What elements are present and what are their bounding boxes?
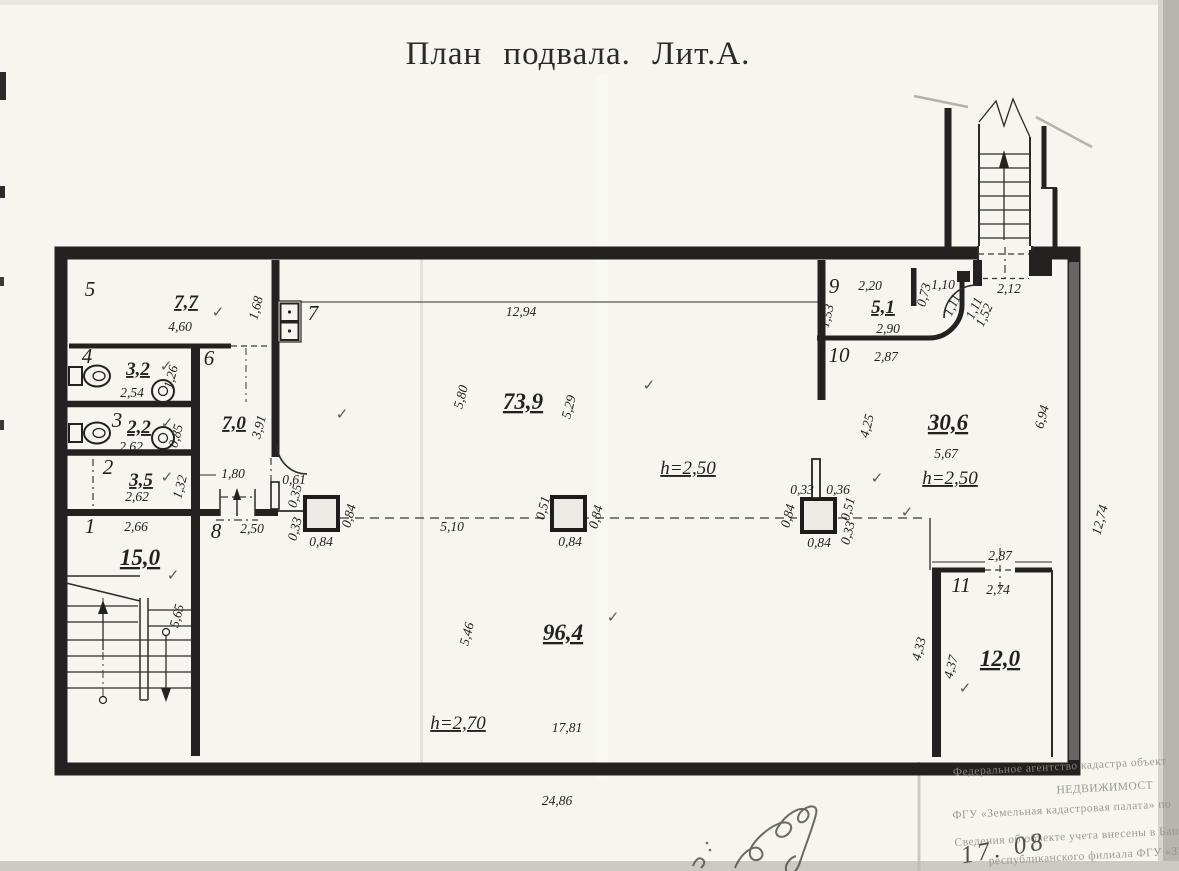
checkmark: ✓ <box>607 610 620 626</box>
stair-post <box>100 697 107 704</box>
room-number-label: 2 <box>103 455 114 479</box>
dimension-label: 2,90 <box>876 321 900 336</box>
checkmark: ✓ <box>336 407 349 423</box>
dimension-label: 1,80 <box>221 466 245 481</box>
room-area-label: 3,5 <box>128 470 153 491</box>
dimension-label: 4,60 <box>168 319 192 334</box>
scan-mark <box>0 277 4 286</box>
outer-wall-shading <box>1069 262 1079 760</box>
dimension-label: 2,66 <box>124 519 148 534</box>
column <box>305 497 338 530</box>
paper-crease <box>420 255 423 770</box>
dimension-label: 2,74 <box>986 582 1010 597</box>
dimension-label: 2,54 <box>120 385 144 400</box>
room-area-label: 2,2 <box>126 417 151 438</box>
checkmark: ✓ <box>167 568 180 584</box>
dimension-label: 24,86 <box>542 793 573 808</box>
room-number-label: 5 <box>85 277 96 301</box>
dimension-label: 2,20 <box>858 278 882 293</box>
room-area-label: 73,9 <box>503 389 544 414</box>
basement-plan-drawing: План подвала. Лит.А. <box>0 0 1179 871</box>
dimension-label: 5,67 <box>934 446 959 461</box>
dimension-label: 0,84 <box>558 534 582 549</box>
room-area-label: 7,0 <box>222 413 246 434</box>
dimension-label: 0,84 <box>309 534 333 549</box>
dimension-label: 2,87 <box>988 548 1013 563</box>
room-number-label: 4 <box>82 344 93 368</box>
dimension-label: 0,33 <box>790 482 814 497</box>
dimension-label: 2,62 <box>119 439 143 454</box>
room-number-label: 10 <box>829 343 851 367</box>
dimension-label: 12,94 <box>506 304 537 319</box>
door-jamb <box>271 482 279 509</box>
room-number-label: 6 <box>204 346 215 370</box>
column <box>802 499 835 532</box>
dimension-label: 5,10 <box>440 519 464 534</box>
room-number-label: 8 <box>211 519 222 543</box>
stair-post <box>163 629 170 636</box>
checkmark: ✓ <box>643 378 656 394</box>
room-area-label: 30,6 <box>927 410 969 435</box>
room-number-label: 7 <box>308 301 320 325</box>
dimension-label: 0,36 <box>826 482 850 497</box>
checkmark: ✓ <box>871 471 884 487</box>
checkmark: ✓ <box>959 681 972 697</box>
dimension-label: 1,10 <box>931 277 955 292</box>
dimension-label: 2,12 <box>997 281 1021 296</box>
dimension-label: 17,81 <box>552 720 582 735</box>
scanned-floor-plan-page: План подвала. Лит.А. <box>0 0 1179 871</box>
sink-unit-icon <box>278 301 301 342</box>
scan-mark <box>0 420 4 430</box>
paper-edge-right-band <box>1163 0 1179 871</box>
room-area-label: 12,0 <box>980 646 1021 671</box>
room-number-label: 9 <box>829 274 840 298</box>
scan-mark <box>0 186 5 198</box>
room-area-label: 96,4 <box>543 620 583 645</box>
checkmark: ✓ <box>212 305 225 321</box>
scan-mark <box>0 72 6 100</box>
dimension-label: 2,50 <box>240 521 264 536</box>
toilet-icon <box>69 366 110 387</box>
paper-edge-top <box>0 0 1179 5</box>
wall-entry-right-block <box>1029 250 1052 276</box>
room-area-label: 15,0 <box>120 545 161 570</box>
checkmark: ✓ <box>901 505 914 521</box>
ceiling-height-label: h=2,50 <box>922 468 978 489</box>
ceiling-height-label: h=2,50 <box>660 458 716 479</box>
dimension-label: 0,84 <box>807 535 831 550</box>
paper-crease <box>596 75 608 780</box>
room-area-label: 3,2 <box>125 359 150 380</box>
checkmark: ✓ <box>161 470 174 486</box>
room-number-label: 11 <box>951 573 970 597</box>
page-title: План подвала. Лит.А. <box>406 36 751 72</box>
room-area-label: 5,1 <box>871 297 895 318</box>
dimension-label: 2,62 <box>125 489 149 504</box>
toilet-icon <box>69 423 110 444</box>
room-number-label: 3 <box>111 408 123 432</box>
room-area-label: 7,7 <box>174 292 199 313</box>
column <box>552 497 585 530</box>
dimension-label: 2,87 <box>874 349 899 364</box>
wall-jamb-block <box>957 271 970 282</box>
room-number-label: 1 <box>85 514 96 538</box>
ceiling-height-label: h=2,70 <box>430 713 486 734</box>
